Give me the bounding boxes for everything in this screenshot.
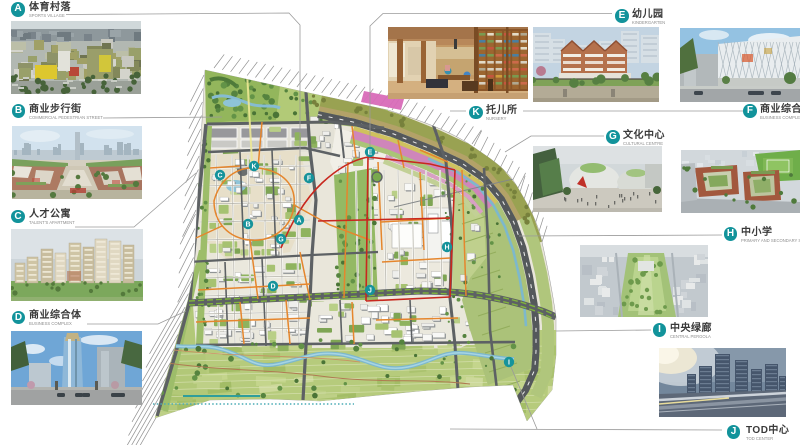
svg-text:H: H — [444, 244, 449, 251]
svg-text:K: K — [251, 163, 256, 170]
svg-text:G: G — [278, 236, 284, 243]
svg-text:F: F — [307, 175, 312, 182]
svg-text:D: D — [270, 283, 275, 290]
svg-text:J: J — [368, 287, 372, 294]
svg-text:A: A — [296, 217, 301, 224]
svg-text:E: E — [368, 149, 373, 156]
svg-text:C: C — [217, 172, 222, 179]
svg-text:I: I — [508, 359, 510, 366]
svg-text:B: B — [245, 221, 250, 228]
